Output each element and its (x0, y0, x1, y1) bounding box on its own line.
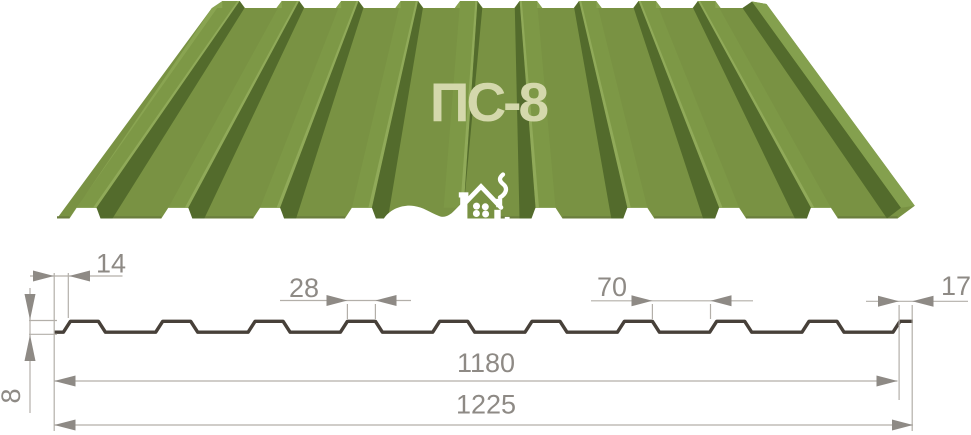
svg-text:70: 70 (597, 272, 627, 302)
svg-text:14: 14 (96, 249, 126, 279)
svg-text:17: 17 (941, 271, 971, 301)
svg-text:28: 28 (289, 273, 319, 303)
svg-text:8: 8 (0, 388, 26, 403)
svg-text:1180: 1180 (457, 348, 515, 378)
svg-text:1225: 1225 (456, 390, 516, 420)
svg-text:ПС-8: ПС-8 (430, 71, 548, 133)
